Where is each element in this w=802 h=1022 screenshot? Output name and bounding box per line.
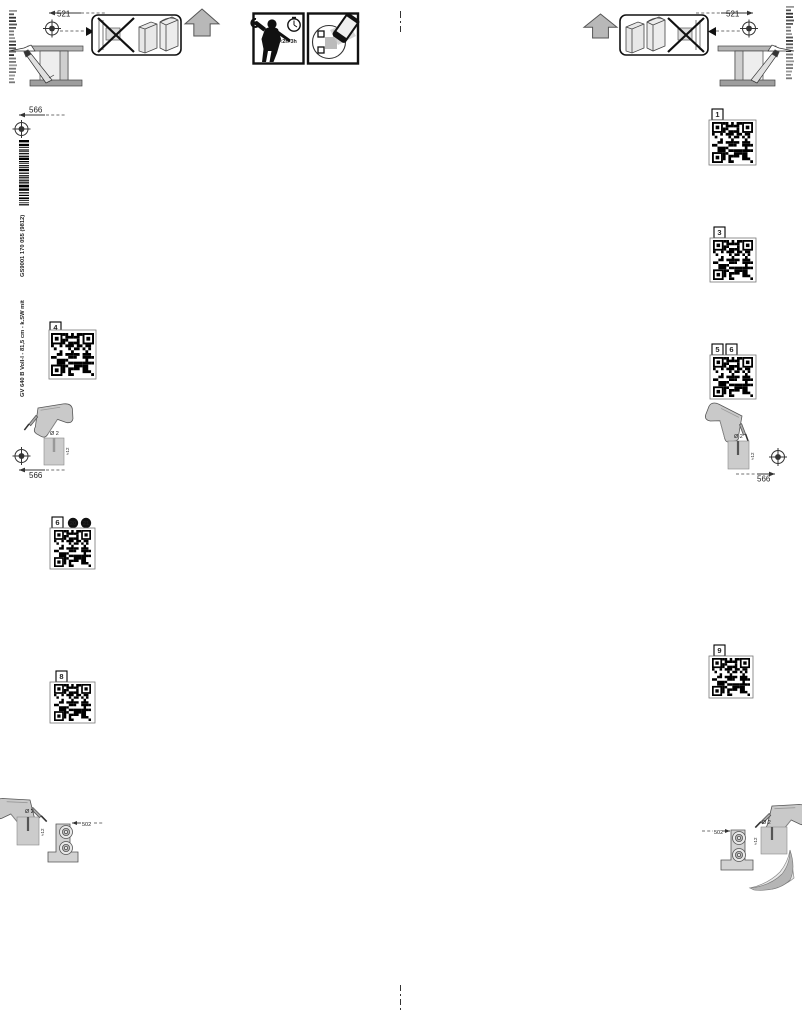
svg-text:≈12: ≈12 xyxy=(753,837,758,845)
svg-text:8: 8 xyxy=(59,672,63,681)
svg-text:9: 9 xyxy=(717,646,721,655)
svg-text:5: 5 xyxy=(715,345,719,354)
svg-text:6: 6 xyxy=(55,518,59,527)
svg-text:566: 566 xyxy=(29,106,43,115)
svg-text:≈12: ≈12 xyxy=(750,452,755,460)
svg-text:521: 521 xyxy=(726,10,740,19)
svg-text:6: 6 xyxy=(729,345,733,354)
svg-text:521: 521 xyxy=(57,10,71,19)
svg-text:20: 20 xyxy=(70,521,76,527)
svg-text:<2h-3h: <2h-3h xyxy=(279,39,297,45)
svg-text:≈12: ≈12 xyxy=(65,447,70,455)
svg-text:Ø 2: Ø 2 xyxy=(762,820,771,826)
svg-text:566: 566 xyxy=(757,475,771,484)
svg-text:566: 566 xyxy=(29,471,43,480)
svg-text:Ø 2: Ø 2 xyxy=(25,809,34,815)
svg-text:Ø 2: Ø 2 xyxy=(734,434,743,440)
svg-text:≈12: ≈12 xyxy=(40,828,45,836)
svg-text:1: 1 xyxy=(715,110,719,119)
svg-text:GS9001 170 055 (9812): GS9001 170 055 (9812) xyxy=(20,215,26,277)
svg-text:3: 3 xyxy=(717,228,721,237)
svg-text:502: 502 xyxy=(82,822,91,828)
svg-text:GV 640 B Voll-I - 81,5 cm - k.: GV 640 B Voll-I - 81,5 cm - k.SW mit xyxy=(20,300,26,397)
svg-text:Ø 2: Ø 2 xyxy=(50,431,59,437)
svg-text:21: 21 xyxy=(83,521,89,527)
svg-text:502: 502 xyxy=(714,830,723,836)
